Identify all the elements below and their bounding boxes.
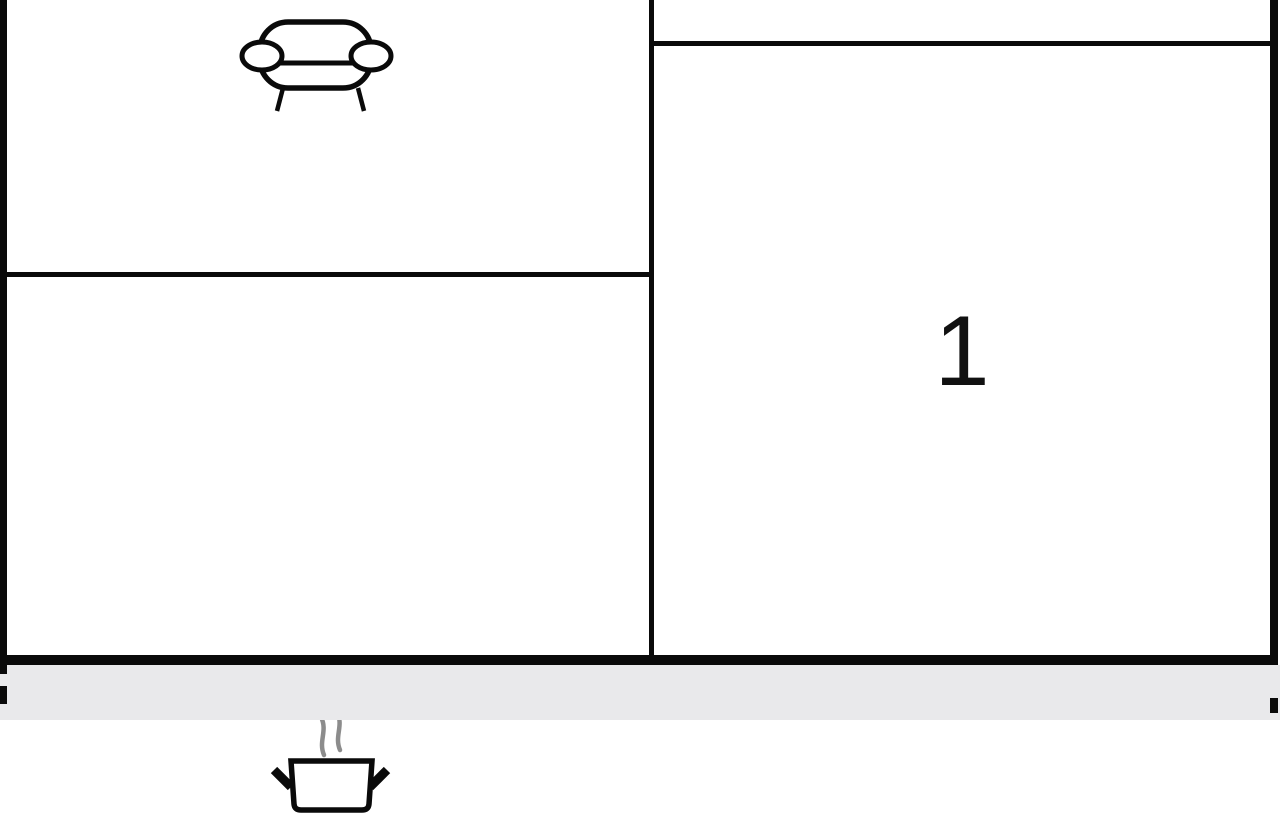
- sofa-armrest-right: [351, 42, 391, 70]
- sofa-armrest-left: [242, 42, 282, 70]
- pot-handle-left: [274, 770, 291, 787]
- wall-left-dash-continuation: [0, 686, 7, 704]
- sofa-icon: [237, 14, 397, 116]
- room-1[interactable]: 1: [654, 46, 1270, 655]
- wall-right-exterior: [1270, 0, 1278, 681]
- wall-middle-vertical: [649, 0, 654, 660]
- sofa-leg-left: [277, 88, 283, 111]
- wall-left-exterior: [0, 0, 7, 660]
- room-living[interactable]: [7, 0, 649, 272]
- sofa-leg-right: [358, 88, 364, 111]
- wall-left-room-divider: [0, 272, 653, 277]
- room-kitchen[interactable]: [7, 277, 649, 655]
- wall-top-right: [649, 41, 1278, 46]
- bottom-margin-strip: [0, 665, 1280, 720]
- floor-plan: 1: [0, 0, 1280, 720]
- wall-left-dash-continuation: [0, 665, 7, 674]
- pot-body: [291, 761, 372, 810]
- wall-bottom-exterior: [0, 655, 1278, 665]
- wall-right-dash-continuation: [1270, 698, 1278, 713]
- room-number-label: 1: [934, 301, 989, 400]
